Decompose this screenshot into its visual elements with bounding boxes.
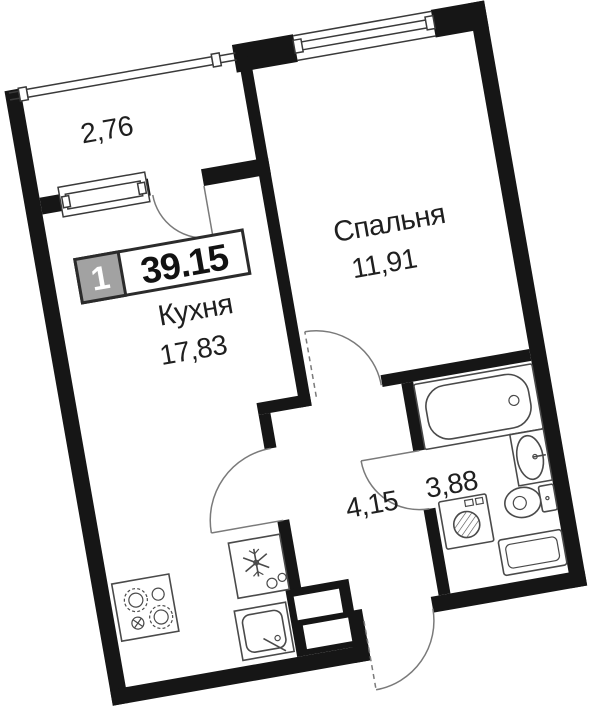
bedroom-door-arc bbox=[305, 320, 381, 396]
kitchen-sink-icon bbox=[234, 602, 294, 660]
floor-plan-svg: 1 39.15 2,76 Кухня 17,83 Спальня 11,91 4… bbox=[0, 0, 600, 724]
vent-shaft-icon bbox=[285, 579, 360, 657]
kitchen-door-arc bbox=[199, 448, 284, 533]
kitchen-name-label: Кухня bbox=[156, 288, 236, 333]
bottom-right-wall bbox=[431, 570, 587, 613]
floor-plan-canvas: 1 39.15 2,76 Кухня 17,83 Спальня 11,91 4… bbox=[0, 0, 600, 724]
kitchen-bottom-wall bbox=[110, 644, 371, 705]
hallway-area-label: 4,15 bbox=[343, 484, 400, 524]
bathroom-door-leaf bbox=[361, 451, 419, 461]
kitchen-bedroom-partition bbox=[238, 56, 311, 408]
kitchen-hallway-wall-upper bbox=[259, 413, 277, 450]
toilet-icon bbox=[502, 482, 557, 520]
bedroom-window-icon bbox=[292, 11, 436, 60]
fridge-icon bbox=[228, 534, 289, 598]
hallway-top-stub-wall bbox=[256, 394, 311, 415]
bedroom-area-label: 11,91 bbox=[349, 242, 419, 284]
balcony-door-window-unit-icon bbox=[58, 162, 205, 217]
bedroom-name-label: Спальня bbox=[331, 198, 448, 249]
balcony-glazing-window-icon bbox=[8, 50, 237, 103]
bathroom-cabinet-icon bbox=[498, 529, 567, 576]
entry-door-arc bbox=[364, 609, 445, 690]
kitchen-area-label: 17,83 bbox=[157, 329, 229, 371]
balcony-door-leaf bbox=[204, 186, 213, 237]
stove-icon bbox=[112, 574, 179, 641]
kitchen-door-leaf bbox=[211, 520, 283, 533]
washing-machine-icon bbox=[438, 494, 494, 550]
balcony-area-label: 2,76 bbox=[78, 110, 135, 150]
apartment-plan: 1 39.15 2,76 Кухня 17,83 Спальня 11,91 4… bbox=[3, 1, 598, 724]
